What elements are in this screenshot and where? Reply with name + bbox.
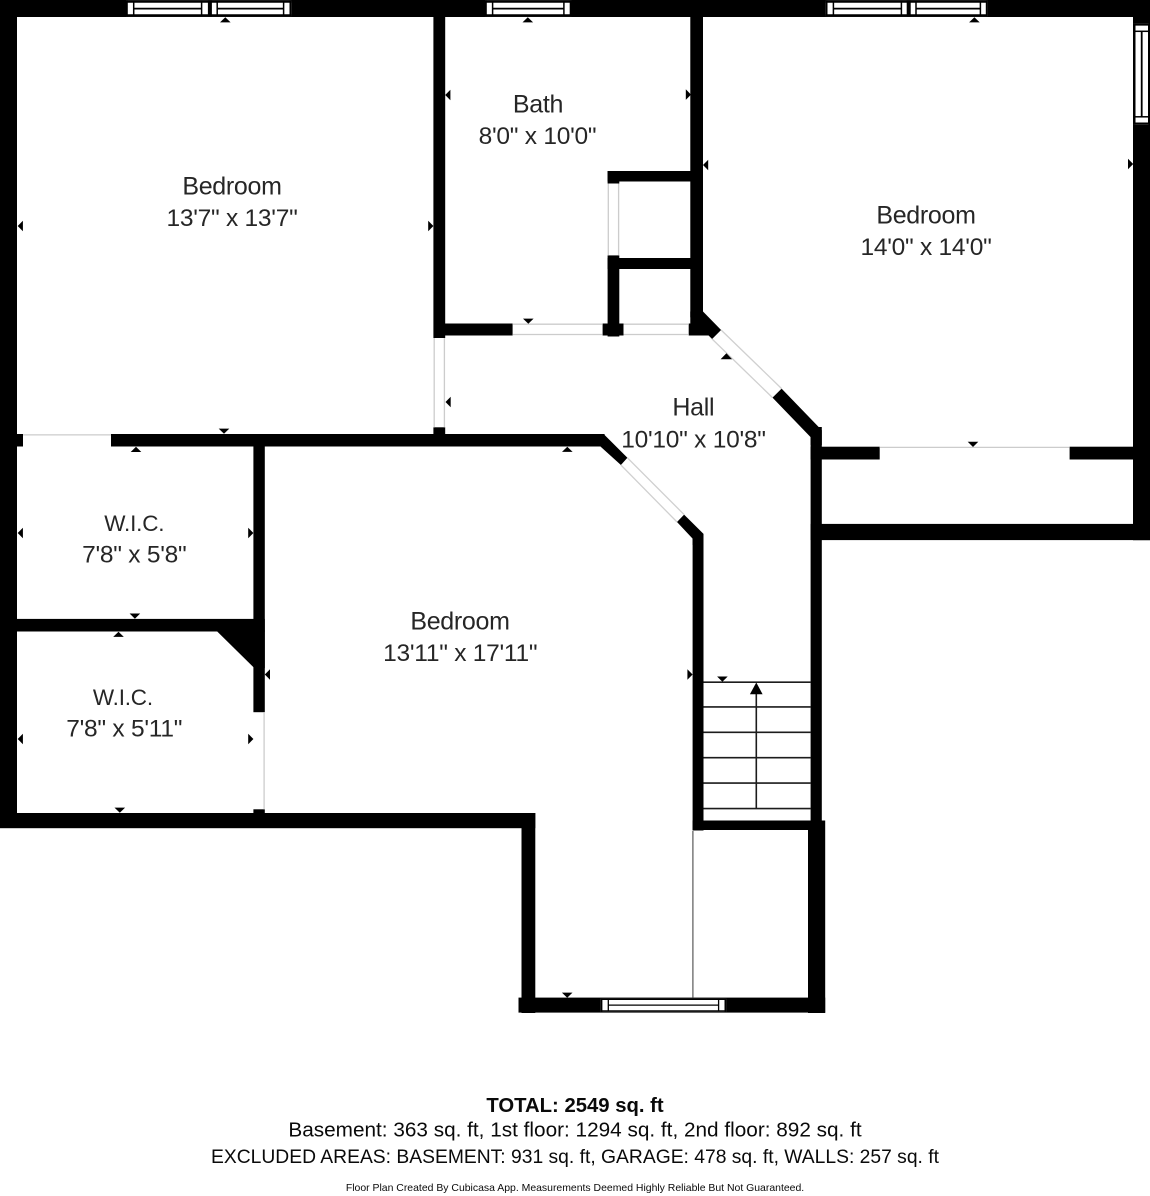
svg-text:Bedroom: Bedroom bbox=[876, 201, 975, 229]
svg-text:Floor Plan Created By Cubicasa: Floor Plan Created By Cubicasa App. Meas… bbox=[346, 1183, 804, 1194]
svg-text:Basement: 363 sq. ft, 1st floo: Basement: 363 sq. ft, 1st floor: 1294 sq… bbox=[288, 1119, 861, 1142]
svg-text:7'8" x 5'8": 7'8" x 5'8" bbox=[82, 542, 186, 569]
svg-text:W.I.C.: W.I.C. bbox=[93, 685, 153, 710]
svg-text:7'8" x 5'11": 7'8" x 5'11" bbox=[66, 716, 182, 743]
svg-text:Hall: Hall bbox=[672, 394, 714, 422]
svg-text:10'10" x 10'8": 10'10" x 10'8" bbox=[621, 427, 766, 454]
svg-text:EXCLUDED AREAS: BASEMENT: 931: EXCLUDED AREAS: BASEMENT: 931 sq. ft, GA… bbox=[211, 1147, 940, 1168]
svg-text:8'0" x 10'0": 8'0" x 10'0" bbox=[479, 123, 597, 150]
svg-text:Bedroom: Bedroom bbox=[182, 173, 281, 201]
svg-text:13'7" x 13'7": 13'7" x 13'7" bbox=[166, 205, 297, 232]
svg-text:TOTAL: 2549 sq. ft: TOTAL: 2549 sq. ft bbox=[486, 1095, 664, 1117]
svg-text:Bedroom: Bedroom bbox=[410, 608, 509, 636]
svg-text:Bath: Bath bbox=[513, 90, 563, 118]
svg-text:14'0" x 14'0": 14'0" x 14'0" bbox=[860, 234, 991, 261]
svg-text:13'11" x 17'11": 13'11" x 17'11" bbox=[383, 640, 537, 667]
svg-text:W.I.C.: W.I.C. bbox=[104, 511, 164, 536]
